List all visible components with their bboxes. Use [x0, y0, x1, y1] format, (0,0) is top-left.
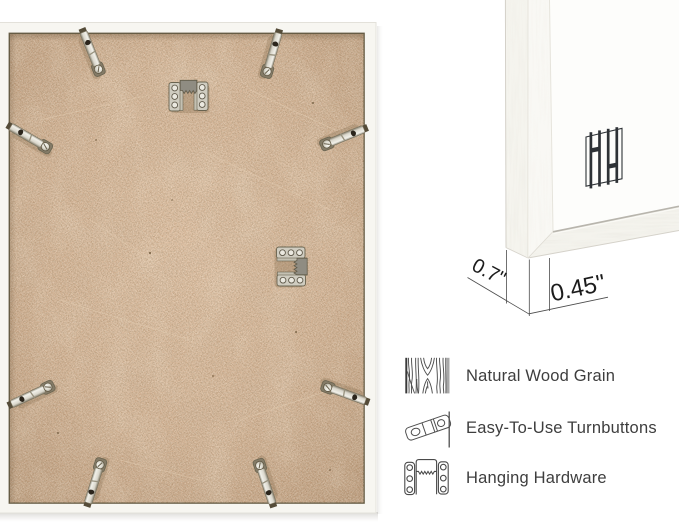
svg-text:0.45": 0.45" — [548, 269, 608, 307]
svg-text:0.7": 0.7" — [468, 254, 509, 290]
